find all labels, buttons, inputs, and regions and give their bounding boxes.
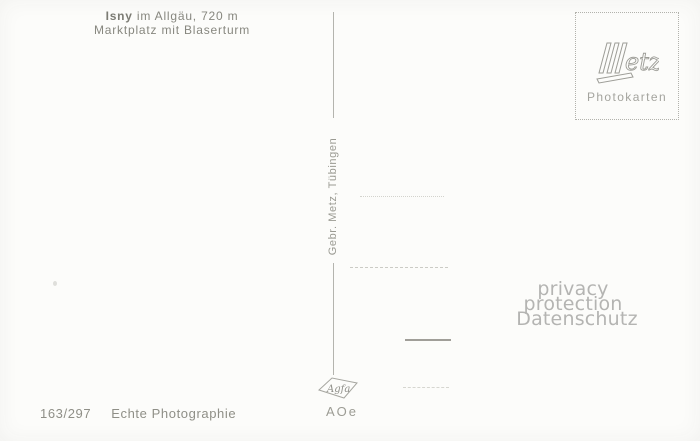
divider-line-bottom — [333, 263, 334, 375]
metz-logo-icon: etz — [595, 37, 659, 87]
caption-place: Isny — [106, 9, 133, 23]
stamp-box-label: Photokarten — [587, 90, 667, 104]
publisher-vertical-text: Gebr. Metz, Tübingen — [327, 132, 340, 261]
divider-line-top — [333, 12, 334, 118]
address-rule-1 — [360, 196, 444, 197]
postcard-back: Isny im Allgäu, 720 m Marktplatz mit Bla… — [0, 0, 700, 441]
bottom-imprint: 163/297 Echte Photographie — [40, 406, 236, 421]
caption-place-detail: im Allgäu, 720 m — [133, 9, 239, 23]
series-number: 163/297 — [40, 406, 91, 421]
stamp-box: etz Photokarten — [575, 12, 679, 120]
caption-subtitle: Marktplatz mit Blaserturm — [72, 24, 272, 38]
photo-label: Echte Photographie — [111, 406, 236, 421]
watermark-line2: Datenschutz — [500, 312, 654, 327]
address-rule-2 — [350, 267, 448, 268]
privacy-watermark: privacy protection Datenschutz — [492, 282, 654, 327]
address-rule-4 — [403, 387, 449, 388]
caption-title: Isny im Allgäu, 720 m — [72, 10, 272, 24]
agfa-logo-icon: Agfa — [318, 376, 358, 400]
paper-speck — [53, 281, 57, 286]
film-code: AOe — [322, 404, 362, 419]
metz-logo-suffix: etz — [625, 48, 659, 76]
caption: Isny im Allgäu, 720 m Marktplatz mit Bla… — [72, 10, 272, 37]
agfa-logo-text: Agfa — [326, 384, 350, 395]
address-rule-3 — [405, 339, 451, 341]
